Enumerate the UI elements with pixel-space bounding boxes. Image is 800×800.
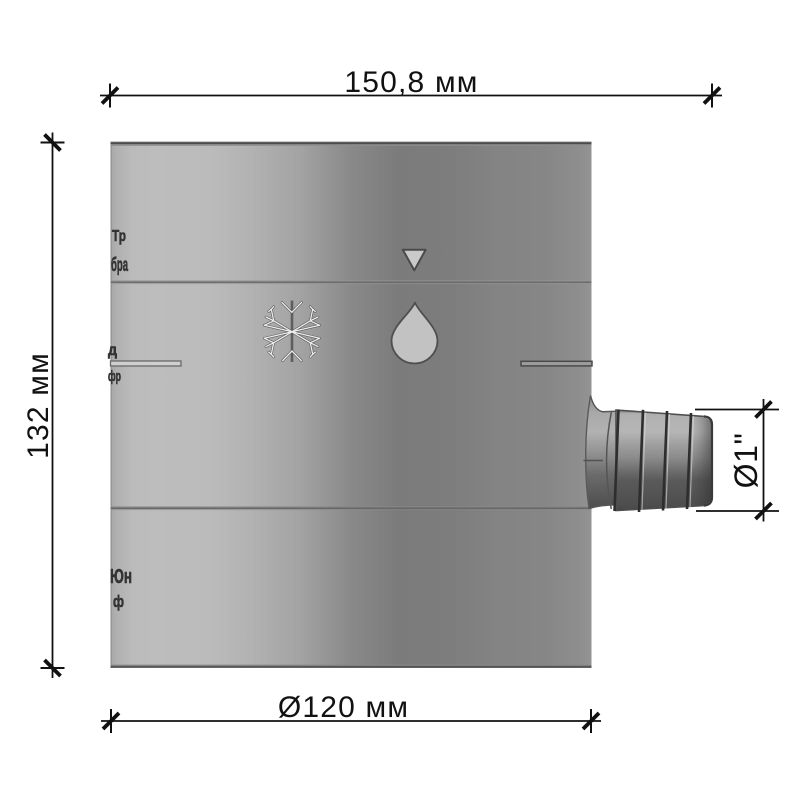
- svg-text:Ø120 мм: Ø120 мм: [278, 691, 409, 724]
- svg-text:бра: бра: [111, 255, 128, 276]
- svg-text:Тр: Тр: [112, 228, 126, 245]
- svg-text:д: д: [108, 342, 117, 359]
- svg-text:Ø1": Ø1": [728, 433, 764, 489]
- svg-text:150,8 мм: 150,8 мм: [344, 66, 478, 99]
- svg-text:Юн: Юн: [110, 566, 132, 588]
- svg-text:фр: фр: [108, 368, 121, 385]
- svg-text:132 мм: 132 мм: [22, 352, 55, 459]
- svg-text:ф: ф: [113, 592, 124, 611]
